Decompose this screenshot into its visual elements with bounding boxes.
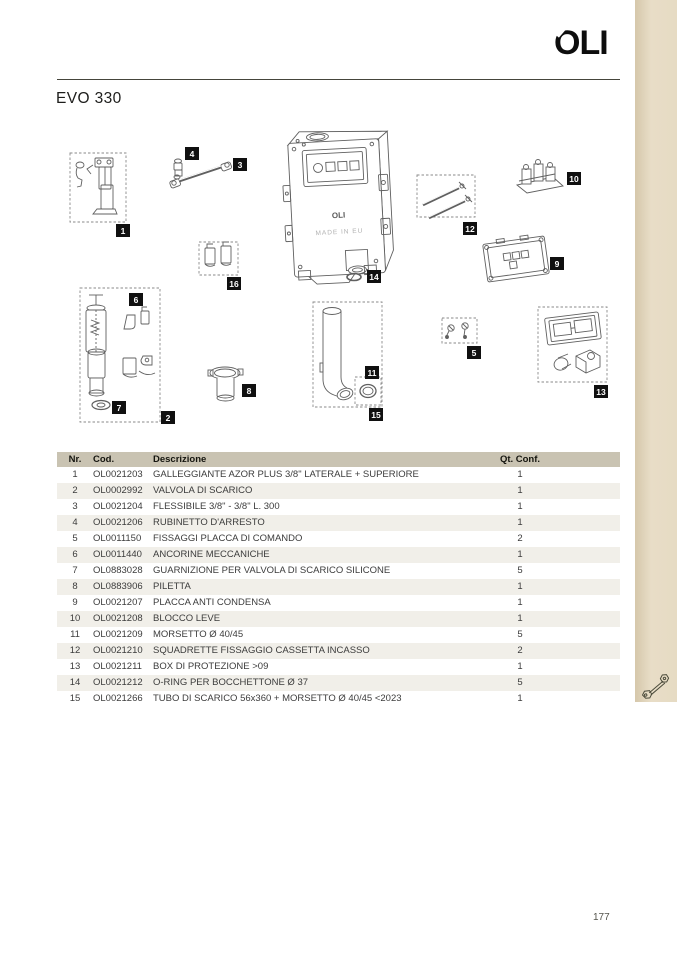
cell-qt: 5 bbox=[420, 627, 620, 643]
table-row: 3OL0021204FLESSIBILE 3/8" - 3/8" L. 3001 bbox=[57, 499, 620, 515]
gasket-drawing bbox=[92, 401, 110, 410]
table-row: 14OL0021212O-RING PER BOCCHETTONE Ø 375 bbox=[57, 675, 620, 691]
table-row: 2OL0002992VALVOLA DI SCARICO1 bbox=[57, 483, 620, 499]
cell-desc: O-RING PER BOCCHETTONE Ø 37 bbox=[153, 675, 420, 691]
catalog-page: OLI EVO 330 bbox=[0, 0, 677, 958]
parts-line-art: OLI MADE IN EU bbox=[55, 125, 625, 435]
part-label-10: 10 bbox=[567, 172, 581, 185]
cell-nr: 14 bbox=[57, 675, 93, 691]
cell-desc: PILETTA bbox=[153, 579, 420, 595]
table-row: 4OL0021206RUBINETTO D'ARRESTO1 bbox=[57, 515, 620, 531]
oli-logo: OLI bbox=[552, 22, 622, 62]
page-title: EVO 330 bbox=[56, 90, 122, 108]
table-row: 11OL0021209MORSETTO Ø 40/455 bbox=[57, 627, 620, 643]
table-row: 13OL0021211BOX DI PROTEZIONE >091 bbox=[57, 659, 620, 675]
clamp-ring-drawing bbox=[360, 385, 376, 398]
cell-cod: OL0021204 bbox=[93, 499, 153, 515]
table-row: 5OL0011150FISSAGGI PLACCA DI COMANDO2 bbox=[57, 531, 620, 547]
part-label-13: 13 bbox=[594, 385, 608, 398]
cell-qt: 1 bbox=[420, 467, 620, 483]
part-label-16: 16 bbox=[227, 277, 241, 290]
cell-qt: 1 bbox=[420, 579, 620, 595]
parts-table: Nr. Cod. Descrizione Qt. Conf. 1OL002120… bbox=[57, 452, 620, 707]
cell-cod: OL0011440 bbox=[93, 547, 153, 563]
cell-nr: 1 bbox=[57, 467, 93, 483]
lever-block-drawing bbox=[517, 160, 563, 194]
cell-desc: GALLEGGIANTE AZOR PLUS 3/8" LATERALE + S… bbox=[153, 467, 420, 483]
table-row: 1OL0021203GALLEGGIANTE AZOR PLUS 3/8" LA… bbox=[57, 467, 620, 483]
part-label-9: 9 bbox=[550, 257, 564, 270]
group-box-11 bbox=[355, 377, 381, 405]
valve-clips-drawing bbox=[123, 307, 155, 377]
cell-cod: OL0002992 bbox=[93, 483, 153, 499]
drain-fitting-drawing bbox=[208, 367, 243, 401]
cell-cod: OL0883028 bbox=[93, 563, 153, 579]
header-divider bbox=[57, 79, 620, 80]
cell-desc: SQUADRETTE FISSAGGIO CASSETTA INCASSO bbox=[153, 643, 420, 659]
cell-cod: OL0021207 bbox=[93, 595, 153, 611]
table-row: 7OL0883028GUARNIZIONE PER VALVOLA DI SCA… bbox=[57, 563, 620, 579]
cell-qt: 1 bbox=[420, 483, 620, 499]
fill-valve-drawing bbox=[76, 158, 117, 214]
cell-nr: 5 bbox=[57, 531, 93, 547]
cell-desc: GUARNIZIONE PER VALVOLA DI SCARICO SILIC… bbox=[153, 563, 420, 579]
cell-qt: 5 bbox=[420, 563, 620, 579]
col-header-nr: Nr. bbox=[57, 452, 93, 467]
table-row: 12OL0021210SQUADRETTE FISSAGGIO CASSETTA… bbox=[57, 643, 620, 659]
cell-desc: PLACCA ANTI CONDENSA bbox=[153, 595, 420, 611]
anchors-drawing bbox=[205, 242, 231, 266]
cell-cod: OL0883906 bbox=[93, 579, 153, 595]
table-row: 10OL0021208BLOCCO LEVE1 bbox=[57, 611, 620, 627]
bracket-rods-drawing bbox=[423, 182, 472, 218]
cell-desc: RUBINETTO D'ARRESTO bbox=[153, 515, 420, 531]
cell-nr: 8 bbox=[57, 579, 93, 595]
page-number: 177 bbox=[593, 912, 610, 923]
cell-qt: 2 bbox=[420, 643, 620, 659]
cell-desc: BLOCCO LEVE bbox=[153, 611, 420, 627]
flush-valve-drawing bbox=[86, 295, 106, 396]
table-row: 15OL0021266TUBO DI SCARICO 56x360 + MORS… bbox=[57, 691, 620, 707]
table-header-row: Nr. Cod. Descrizione Qt. Conf. bbox=[57, 452, 620, 467]
cell-desc: ANCORINE MECCANICHE bbox=[153, 547, 420, 563]
cell-cod: OL0011150 bbox=[93, 531, 153, 547]
part-label-5: 5 bbox=[467, 346, 481, 359]
cell-cod: OL0021211 bbox=[93, 659, 153, 675]
part-label-11: 11 bbox=[365, 366, 379, 379]
protection-box-drawing bbox=[544, 312, 601, 373]
col-header-desc: Descrizione bbox=[153, 452, 420, 467]
part-label-14: 14 bbox=[367, 270, 381, 283]
cell-qt: 1 bbox=[420, 515, 620, 531]
cell-nr: 15 bbox=[57, 691, 93, 707]
part-label-1: 1 bbox=[116, 224, 130, 237]
plate-fixings-drawing bbox=[446, 323, 469, 339]
exploded-parts-diagram: OLI MADE IN EU bbox=[55, 125, 625, 435]
cistern-tank-drawing: OLI MADE IN EU bbox=[280, 127, 395, 285]
cell-qt: 1 bbox=[420, 691, 620, 707]
cell-nr: 2 bbox=[57, 483, 93, 499]
table-row: 8OL0883906PILETTA1 bbox=[57, 579, 620, 595]
cell-qt: 1 bbox=[420, 659, 620, 675]
group-box-5 bbox=[442, 318, 477, 343]
part-label-12: 12 bbox=[463, 222, 477, 235]
cell-nr: 7 bbox=[57, 563, 93, 579]
cell-nr: 3 bbox=[57, 499, 93, 515]
part-label-2: 2 bbox=[161, 411, 175, 424]
col-header-qt: Qt. Conf. bbox=[420, 452, 620, 467]
part-label-15: 15 bbox=[369, 408, 383, 421]
cell-nr: 11 bbox=[57, 627, 93, 643]
cell-qt: 1 bbox=[420, 595, 620, 611]
cell-nr: 9 bbox=[57, 595, 93, 611]
cell-nr: 13 bbox=[57, 659, 93, 675]
cell-nr: 6 bbox=[57, 547, 93, 563]
stop-cock-drawing bbox=[174, 159, 182, 179]
cell-cod: OL0021210 bbox=[93, 643, 153, 659]
cell-nr: 12 bbox=[57, 643, 93, 659]
anti-condensation-plate-drawing bbox=[482, 233, 549, 282]
cell-desc: FISSAGGI PLACCA DI COMANDO bbox=[153, 531, 420, 547]
cell-cod: OL0021206 bbox=[93, 515, 153, 531]
cell-cod: OL0021208 bbox=[93, 611, 153, 627]
part-label-3: 3 bbox=[233, 158, 247, 171]
cell-desc: FLESSIBILE 3/8" - 3/8" L. 300 bbox=[153, 499, 420, 515]
cell-cod: OL0021209 bbox=[93, 627, 153, 643]
tank-brand-text: OLI bbox=[332, 211, 346, 221]
cell-qt: 1 bbox=[420, 499, 620, 515]
cell-qt: 1 bbox=[420, 611, 620, 627]
part-label-6: 6 bbox=[129, 293, 143, 306]
outlet-tube-drawing bbox=[320, 308, 354, 402]
table-body: 1OL0021203GALLEGGIANTE AZOR PLUS 3/8" LA… bbox=[57, 467, 620, 707]
cell-nr: 10 bbox=[57, 611, 93, 627]
cell-desc: TUBO DI SCARICO 56x360 + MORSETTO Ø 40/4… bbox=[153, 691, 420, 707]
cell-qt: 2 bbox=[420, 531, 620, 547]
table-row: 6OL0011440ANCORINE MECCANICHE1 bbox=[57, 547, 620, 563]
table-row: 9OL0021207PLACCA ANTI CONDENSA1 bbox=[57, 595, 620, 611]
part-label-8: 8 bbox=[242, 384, 256, 397]
cell-desc: BOX DI PROTEZIONE >09 bbox=[153, 659, 420, 675]
part-label-4: 4 bbox=[185, 147, 199, 160]
part-label-7: 7 bbox=[112, 401, 126, 414]
cell-desc: MORSETTO Ø 40/45 bbox=[153, 627, 420, 643]
cell-qt: 5 bbox=[420, 675, 620, 691]
col-header-cod: Cod. bbox=[93, 452, 153, 467]
cell-nr: 4 bbox=[57, 515, 93, 531]
cell-qt: 1 bbox=[420, 547, 620, 563]
cell-cod: OL0021212 bbox=[93, 675, 153, 691]
cell-desc: VALVOLA DI SCARICO bbox=[153, 483, 420, 499]
cell-cod: OL0021203 bbox=[93, 467, 153, 483]
cell-cod: OL0021266 bbox=[93, 691, 153, 707]
spare-parts-edge-stripe bbox=[635, 0, 677, 702]
